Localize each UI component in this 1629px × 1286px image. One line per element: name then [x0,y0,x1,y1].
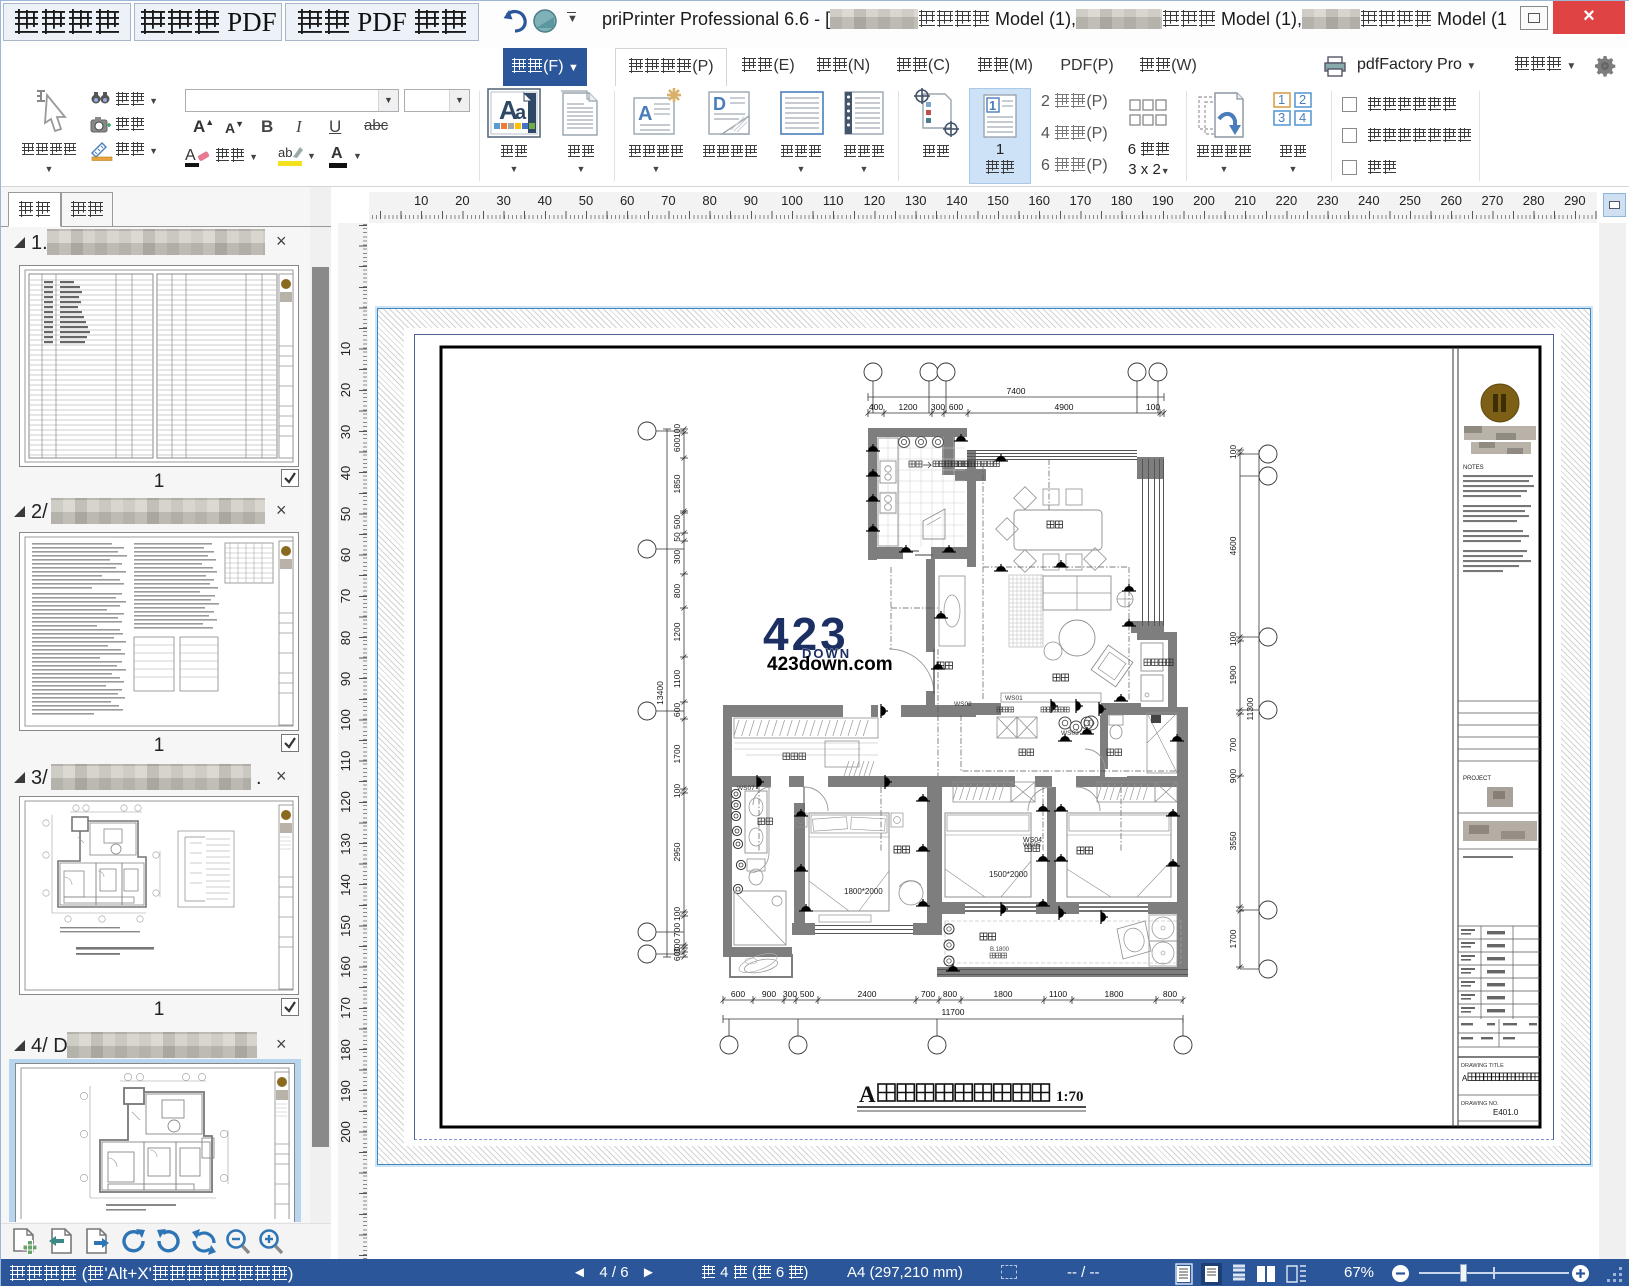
svg-text:11300: 11300 [1245,697,1255,720]
svg-text:800: 800 [1163,989,1177,999]
svg-text:300: 300 [931,402,945,412]
svg-text:600: 600 [731,989,745,999]
svg-text:1800: 1800 [994,989,1013,999]
svg-text:4900: 4900 [1055,402,1074,412]
svg-text:100: 100 [1228,445,1238,459]
svg-text:100: 100 [672,784,682,798]
svg-text:B.1800: B.1800 [990,947,1010,953]
svg-text:DRAWING NO.: DRAWING NO. [1461,1101,1499,1107]
svg-text:4600: 4600 [1228,536,1238,555]
svg-text:A: A [638,103,652,125]
svg-text:400: 400 [869,402,883,412]
svg-text:4: 4 [1299,110,1306,125]
svg-text:100: 100 [672,907,682,921]
svg-text:D: D [713,94,726,114]
svg-text:1:70: 1:70 [1056,1089,1084,1105]
svg-text:1800*2000: 1800*2000 [844,887,883,896]
svg-text:600: 600 [672,947,682,961]
svg-text:600: 600 [949,402,963,412]
svg-text:11700: 11700 [941,1007,964,1017]
svg-text:A: A [859,1082,876,1107]
svg-text:1500*2000: 1500*2000 [989,870,1028,879]
svg-text:1200: 1200 [672,622,682,641]
svg-text:WS05: WS05 [1023,842,1041,849]
svg-text:423down.com: 423down.com [767,654,893,675]
svg-text:1700: 1700 [672,744,682,763]
svg-text:E401.0: E401.0 [1493,1108,1519,1117]
svg-text:WS07: WS07 [737,785,755,792]
svg-text:800: 800 [943,989,957,999]
svg-text:50: 50 [672,532,682,542]
svg-text:900: 900 [762,989,776,999]
svg-text:600: 600 [672,703,682,717]
svg-text:1900: 1900 [1228,665,1238,684]
svg-text:1700: 1700 [1228,929,1238,948]
svg-text:500: 500 [800,989,814,999]
svg-text:100: 100 [672,424,682,438]
svg-text:100: 100 [1146,402,1160,412]
svg-text:700: 700 [1228,738,1238,752]
svg-text:2400: 2400 [858,989,877,999]
svg-text:700: 700 [672,923,682,937]
svg-text:WS02: WS02 [954,701,972,708]
svg-text:PROJECT: PROJECT [1463,776,1491,782]
svg-text:100: 100 [1228,632,1238,646]
svg-text:1100: 1100 [672,670,682,689]
svg-text:700: 700 [921,989,935,999]
svg-text:1800: 1800 [1105,989,1124,999]
svg-text:WS03: WS03 [1061,730,1079,737]
svg-text:7400: 7400 [1007,386,1026,396]
svg-text:NOTES: NOTES [1463,465,1484,471]
svg-text:13400: 13400 [655,681,665,705]
svg-text:2950: 2950 [672,842,682,861]
svg-text:300: 300 [672,550,682,564]
svg-text:WS01: WS01 [1005,695,1023,702]
svg-text:300: 300 [783,989,797,999]
svg-text:600: 600 [672,438,682,452]
svg-text:1100: 1100 [1049,989,1068,999]
svg-text:3550: 3550 [1228,831,1238,850]
svg-text:500: 500 [672,515,682,529]
svg-text:2: 2 [1299,92,1306,107]
svg-text:a: a [515,102,527,124]
svg-text:DRAWING TITLE: DRAWING TITLE [1461,1063,1504,1069]
svg-text:1: 1 [989,98,996,113]
svg-text:800: 800 [672,584,682,598]
svg-text:900: 900 [1228,769,1238,783]
svg-text:1850: 1850 [672,474,682,493]
svg-text:1: 1 [1278,92,1285,107]
svg-text:3: 3 [1278,110,1285,125]
svg-text:A: A [1462,1074,1468,1083]
svg-text:1200: 1200 [899,402,918,412]
